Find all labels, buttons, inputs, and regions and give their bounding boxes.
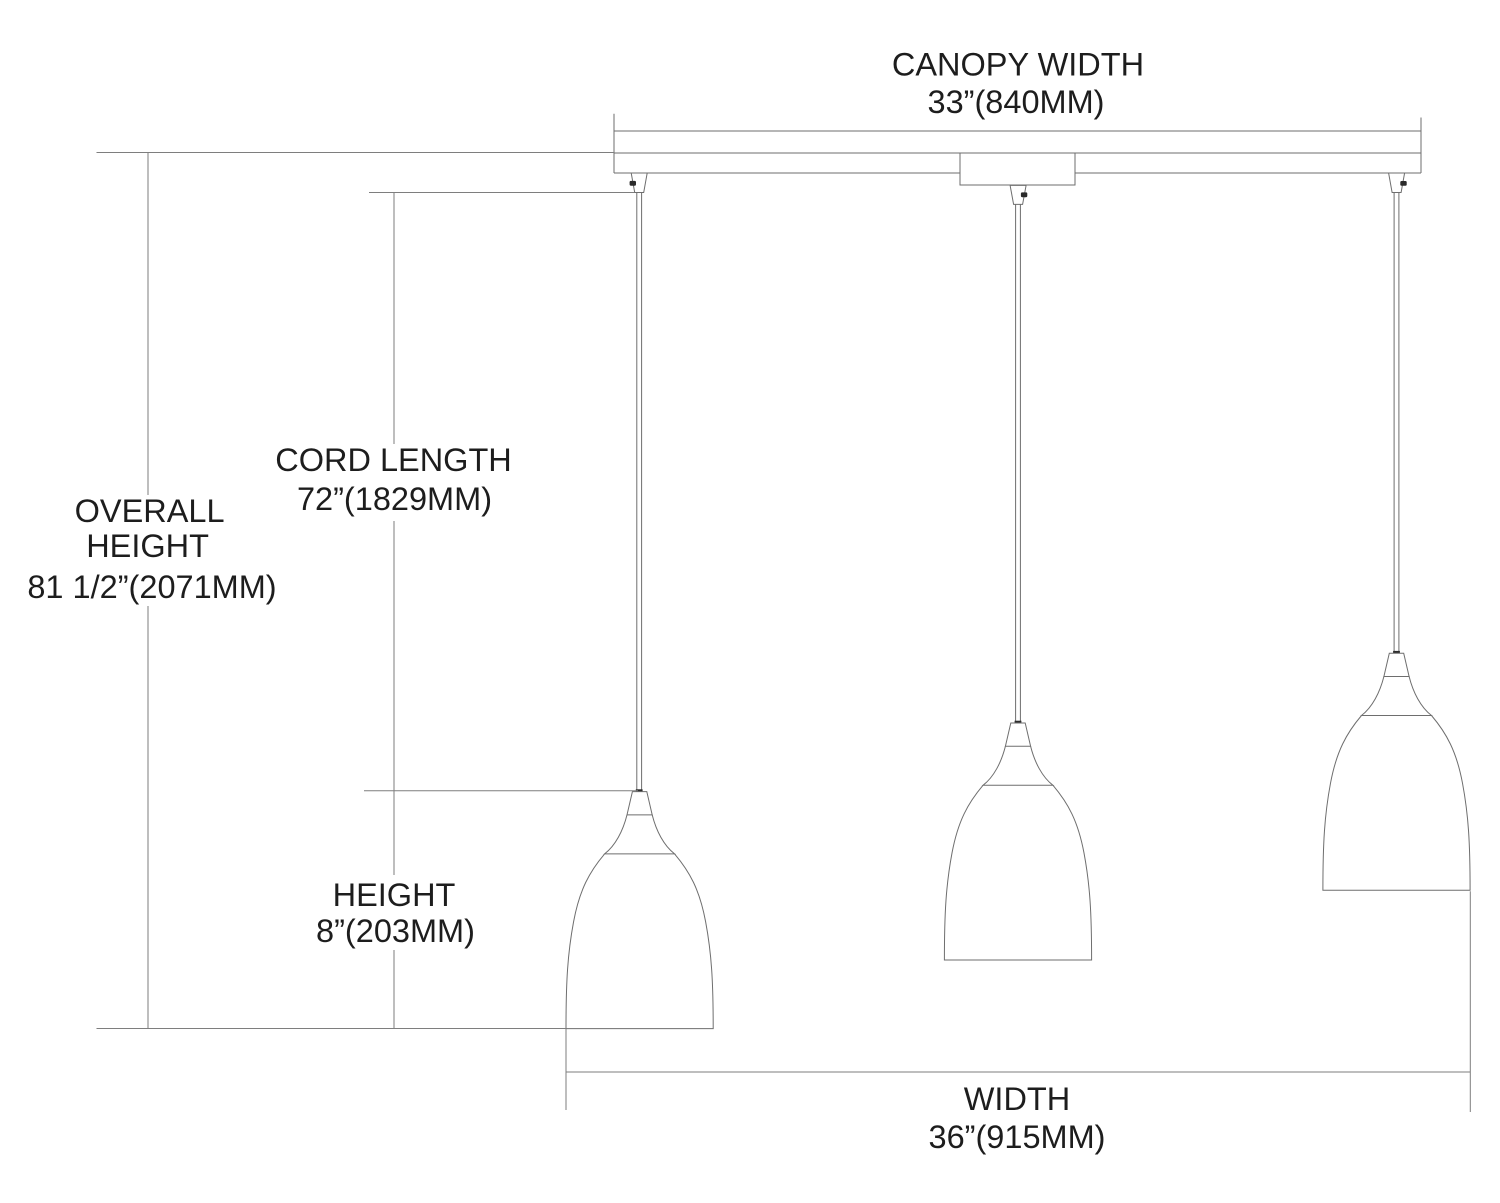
svg-text:CANOPY WIDTH: CANOPY WIDTH	[892, 47, 1144, 83]
svg-text:WIDTH: WIDTH	[964, 1081, 1071, 1117]
svg-text:33”(840MM): 33”(840MM)	[928, 84, 1105, 120]
svg-text:72”(1829MM): 72”(1829MM)	[297, 481, 492, 517]
svg-text:HEIGHT: HEIGHT	[333, 877, 456, 913]
svg-text:HEIGHT: HEIGHT	[86, 528, 209, 564]
svg-text:OVERALL: OVERALL	[75, 493, 225, 529]
svg-text:8”(203MM): 8”(203MM)	[316, 913, 475, 949]
svg-text:36”(915MM): 36”(915MM)	[929, 1119, 1106, 1155]
svg-text:81 1/2”(2071MM): 81 1/2”(2071MM)	[27, 569, 276, 605]
svg-text:CORD LENGTH: CORD LENGTH	[275, 442, 512, 478]
